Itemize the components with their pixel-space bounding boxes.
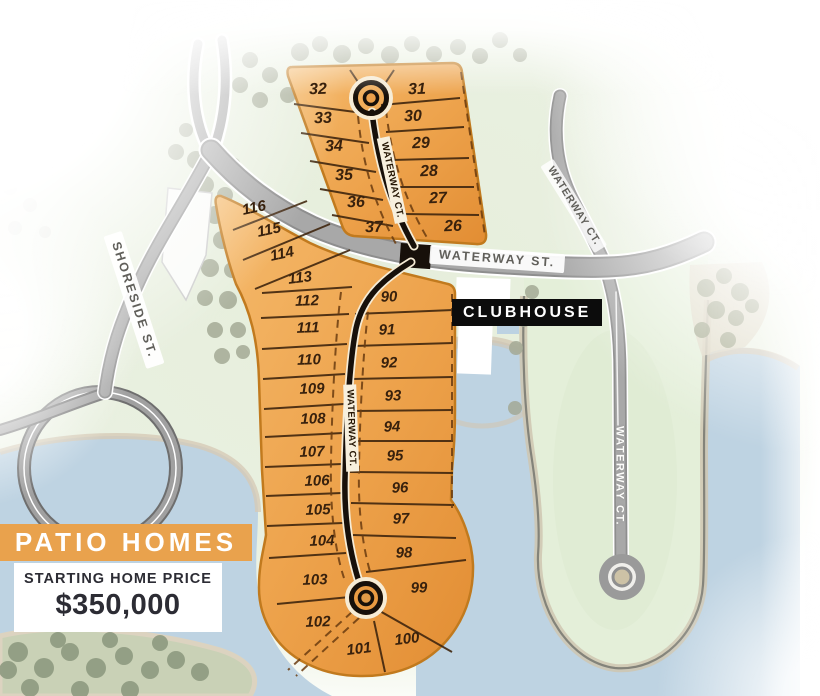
lot-93: 93 xyxy=(384,388,401,404)
street-label-waterway-ct-south: WATERWAY CT. xyxy=(612,426,625,526)
lot-100: 100 xyxy=(394,630,421,648)
lot-91: 91 xyxy=(378,322,395,338)
lot-108: 108 xyxy=(300,411,326,427)
lot-97: 97 xyxy=(392,511,409,527)
lot-106: 106 xyxy=(304,473,330,489)
lot-31: 31 xyxy=(408,82,426,99)
lot-109: 109 xyxy=(299,381,325,397)
lot-33: 33 xyxy=(314,111,332,128)
culdesac-right xyxy=(599,554,645,600)
lot-102: 102 xyxy=(305,614,331,630)
lot-94: 94 xyxy=(383,419,400,435)
clubhouse-label: CLUBHOUSE xyxy=(452,299,602,326)
lot-113: 113 xyxy=(287,269,313,287)
lot-107: 107 xyxy=(299,444,325,460)
lot-103: 103 xyxy=(302,572,328,588)
site-map-image: 32 33 34 35 36 37 31 30 29 28 27 26 116 … xyxy=(0,0,820,696)
lot-30: 30 xyxy=(404,109,422,126)
lot-95: 95 xyxy=(386,448,403,464)
lot-35: 35 xyxy=(335,168,353,185)
lot-112: 112 xyxy=(295,293,319,309)
patio-homes-banner: PATIO HOMES xyxy=(0,524,252,561)
lot-99: 99 xyxy=(410,580,427,596)
lot-34: 34 xyxy=(325,139,343,156)
lot-104: 104 xyxy=(309,533,335,549)
price-box: STARTING HOME PRICE $350,000 xyxy=(14,563,222,632)
lot-27: 27 xyxy=(429,191,447,208)
lot-111: 111 xyxy=(296,320,319,336)
lot-101: 101 xyxy=(346,640,373,658)
lot-32: 32 xyxy=(309,82,327,99)
lot-98: 98 xyxy=(395,545,412,561)
lot-29: 29 xyxy=(412,136,430,153)
lot-92: 92 xyxy=(380,355,397,371)
lot-90: 90 xyxy=(380,289,397,305)
lot-26: 26 xyxy=(444,219,462,236)
lot-36: 36 xyxy=(347,195,365,212)
price-value: $350,000 xyxy=(14,589,222,622)
lot-96: 96 xyxy=(391,480,408,496)
lot-28: 28 xyxy=(420,164,438,181)
price-heading: STARTING HOME PRICE xyxy=(14,571,222,587)
lot-37: 37 xyxy=(365,220,383,237)
lot-110: 110 xyxy=(297,352,321,368)
lot-105: 105 xyxy=(305,502,331,518)
